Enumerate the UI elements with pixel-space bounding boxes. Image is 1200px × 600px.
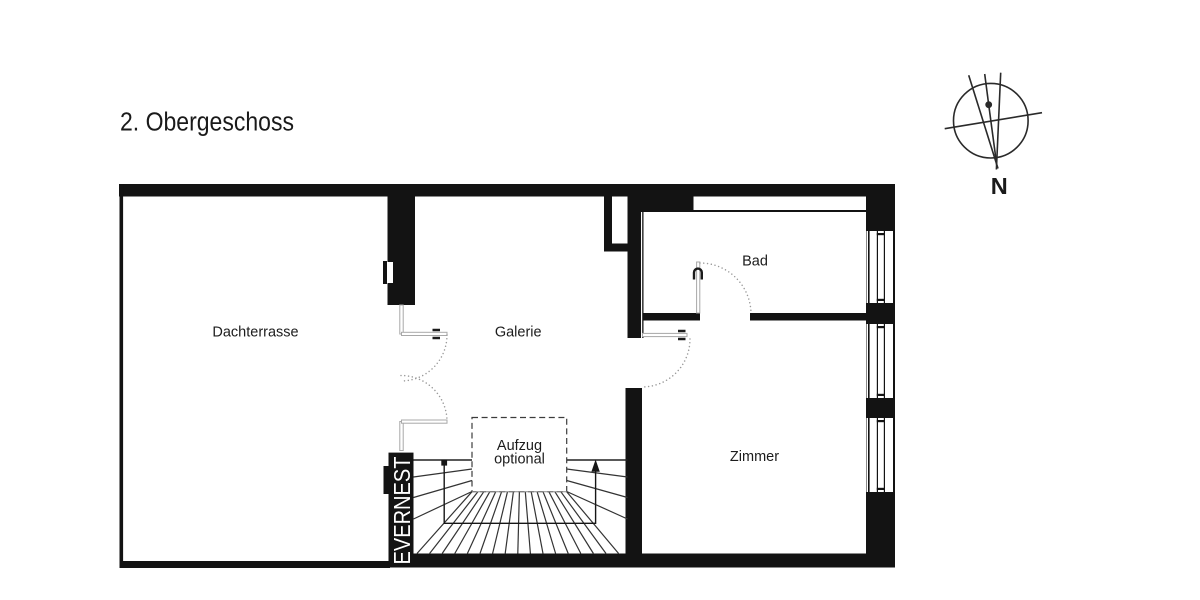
svg-text:2. Obergeschoss: 2. Obergeschoss bbox=[120, 109, 294, 137]
svg-text:Galerie: Galerie bbox=[495, 325, 542, 341]
svg-text:optional: optional bbox=[494, 452, 545, 468]
svg-text:EVERNEST: EVERNEST bbox=[389, 457, 415, 565]
svg-text:Bad: Bad bbox=[742, 254, 768, 270]
svg-text:Dachterrasse: Dachterrasse bbox=[212, 325, 298, 341]
svg-text:N: N bbox=[991, 173, 1008, 199]
svg-text:Zimmer: Zimmer bbox=[730, 449, 779, 465]
